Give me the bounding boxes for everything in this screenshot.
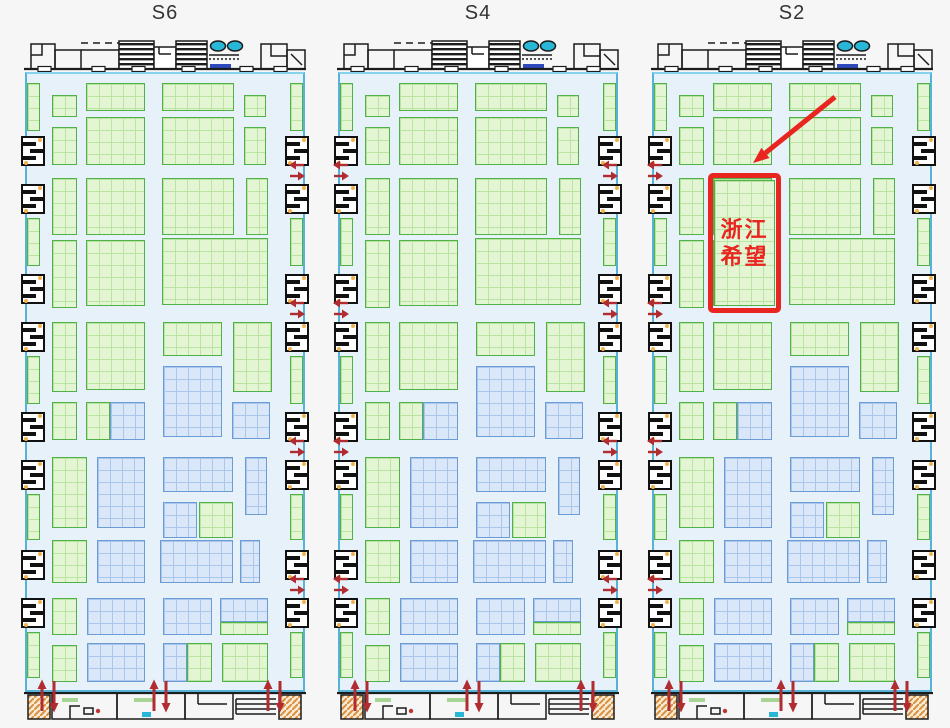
service-room-module: [21, 598, 45, 628]
booth: [52, 240, 77, 308]
booth: [240, 540, 260, 583]
two-way-arrow-icon: [601, 435, 619, 459]
service-room-module: [21, 412, 45, 442]
service-room-module: [285, 322, 309, 352]
booth: [163, 366, 222, 437]
floorplan-s4: [335, 0, 621, 728]
booth: [871, 95, 893, 117]
two-way-arrow-icon: [332, 297, 350, 321]
booth: [737, 402, 772, 440]
service-room-module: [598, 598, 622, 628]
booth: [545, 402, 583, 439]
booth: [365, 540, 400, 583]
booth: [423, 402, 458, 440]
booth: [790, 598, 839, 635]
service-room-icon: [912, 184, 936, 214]
booth: [871, 127, 893, 165]
two-way-arrow: [646, 159, 664, 183]
service-room-icon: [912, 550, 936, 580]
two-way-arrow-icon: [601, 159, 619, 183]
booth: [52, 178, 77, 235]
booth: [790, 366, 849, 437]
service-room-icon: [21, 184, 45, 214]
service-room-icon: [21, 412, 45, 442]
top-architecture-strip: [335, 38, 621, 72]
booth: [679, 540, 714, 583]
booth: [790, 502, 824, 538]
booth: [872, 457, 894, 515]
two-way-arrow-icon: [646, 573, 664, 597]
booth: [476, 502, 510, 538]
service-room-module: [912, 184, 936, 214]
wall-booth: [603, 83, 616, 131]
booth: [410, 457, 458, 528]
service-room-icon: [21, 598, 45, 628]
booth: [52, 322, 77, 392]
booth: [557, 95, 579, 117]
wall-booth: [603, 218, 616, 266]
booth: [476, 643, 500, 682]
two-way-arrow-icon: [288, 297, 306, 321]
wall-booth: [290, 83, 303, 131]
service-room-module: [598, 184, 622, 214]
service-room-icon: [21, 136, 45, 166]
service-room-icon: [648, 322, 672, 352]
hall-panel-s2: S2: [649, 0, 935, 728]
wall-booth: [654, 632, 667, 678]
booth: [814, 643, 839, 682]
two-way-arrow-icon: [332, 573, 350, 597]
service-room-icon: [21, 274, 45, 304]
booth: [713, 117, 772, 165]
booth: [475, 117, 547, 165]
booth: [476, 598, 525, 635]
up-down-arrow: [148, 678, 172, 714]
service-room-module: [912, 322, 936, 352]
service-room-module: [648, 598, 672, 628]
booth: [365, 322, 390, 392]
booth: [244, 127, 266, 165]
booth: [162, 178, 234, 235]
booth: [52, 127, 77, 165]
up-down-arrow-icon: [775, 678, 799, 714]
booth: [533, 598, 581, 622]
fixture-oval-icon: [228, 41, 243, 51]
up-down-arrow: [575, 678, 599, 714]
two-way-arrow: [288, 573, 306, 597]
booth: [52, 457, 87, 528]
booth: [789, 238, 895, 305]
service-room-module: [21, 322, 45, 352]
booth: [163, 502, 197, 538]
wall-booth: [917, 494, 930, 540]
booth: [86, 117, 145, 165]
up-down-arrow-icon: [889, 678, 913, 714]
service-room-icon: [912, 322, 936, 352]
service-room-module: [912, 598, 936, 628]
floorplan-s2: 浙江希望: [649, 0, 935, 728]
wall-booth: [603, 632, 616, 678]
wall-booth: [654, 356, 667, 404]
booth: [232, 402, 270, 439]
booth: [233, 322, 272, 392]
booth: [512, 502, 546, 538]
booth: [162, 117, 234, 165]
service-room-module: [334, 184, 358, 214]
booth: [86, 402, 110, 440]
wall-booth: [27, 632, 40, 678]
hall-panel-s6: S6: [22, 0, 308, 728]
booth: [847, 622, 895, 635]
booth: [679, 95, 704, 117]
wall-booth: [603, 494, 616, 540]
service-room-icon: [334, 598, 358, 628]
wall-booth: [917, 83, 930, 131]
booth: [97, 457, 145, 528]
two-way-arrow: [332, 573, 350, 597]
two-way-arrow: [646, 297, 664, 321]
floorplan-s6: [22, 0, 308, 728]
fixture-oval-icon: [211, 41, 226, 51]
service-room-module: [334, 460, 358, 490]
service-room-icon: [285, 598, 309, 628]
booth: [679, 322, 704, 392]
up-down-arrow: [663, 678, 687, 714]
booth: [52, 598, 77, 635]
service-room-icon: [912, 136, 936, 166]
booth: [713, 402, 737, 440]
wall-booth: [290, 494, 303, 540]
service-room-module: [334, 598, 358, 628]
service-room-module: [21, 274, 45, 304]
booth: [400, 643, 458, 682]
wall-booth: [27, 494, 40, 540]
booth: [245, 457, 267, 515]
service-room-icon: [598, 598, 622, 628]
booth: [365, 645, 390, 682]
booth: [399, 178, 458, 235]
wall-booth: [290, 218, 303, 266]
booth: [476, 322, 535, 356]
fixture-oval-icon: [524, 41, 539, 51]
booth: [559, 178, 581, 235]
booth: [52, 402, 77, 440]
two-way-arrow: [332, 435, 350, 459]
service-room-icon: [285, 322, 309, 352]
service-room-module: [912, 460, 936, 490]
service-room-icon: [21, 550, 45, 580]
wall-booth: [917, 356, 930, 404]
highlight-label-line: 浙江: [720, 216, 768, 243]
service-room-icon: [285, 184, 309, 214]
booth: [473, 540, 546, 583]
booth: [87, 643, 145, 682]
booth: [679, 402, 704, 440]
booth: [162, 238, 268, 305]
two-way-arrow-icon: [646, 159, 664, 183]
booth: [86, 240, 145, 306]
booth: [789, 83, 861, 111]
up-down-arrow-icon: [575, 678, 599, 714]
fixture-oval-icon: [838, 41, 853, 51]
wall-booth: [340, 494, 353, 540]
two-way-arrow: [288, 159, 306, 183]
booth: [399, 83, 458, 111]
up-down-arrow: [461, 678, 485, 714]
service-room-module: [912, 550, 936, 580]
top-architecture-drawing: [335, 38, 621, 72]
booth: [52, 540, 87, 583]
two-way-arrow-icon: [288, 573, 306, 597]
booth: [790, 322, 849, 356]
booth: [679, 127, 704, 165]
service-room-icon: [648, 184, 672, 214]
wall-booth: [340, 83, 353, 131]
booth: [86, 83, 145, 111]
booth: [867, 540, 887, 583]
service-room-icon: [912, 274, 936, 304]
booth: [163, 322, 222, 356]
booth: [52, 95, 77, 117]
two-way-arrow: [646, 573, 664, 597]
fixture-oval-icon: [541, 41, 556, 51]
two-way-arrow-icon: [288, 159, 306, 183]
service-room-icon: [334, 322, 358, 352]
booth: [679, 457, 714, 528]
highlight-label-line: 希望: [720, 243, 768, 270]
booth: [399, 322, 458, 390]
service-room-icon: [334, 460, 358, 490]
wall-booth: [603, 356, 616, 404]
two-way-arrow-icon: [332, 435, 350, 459]
service-room-icon: [598, 460, 622, 490]
service-room-icon: [912, 460, 936, 490]
wall-booth: [27, 356, 40, 404]
two-way-arrow: [332, 297, 350, 321]
two-way-arrow: [601, 435, 619, 459]
booth: [553, 540, 573, 583]
booth: [163, 457, 233, 492]
two-way-arrow: [601, 297, 619, 321]
booth: [714, 643, 772, 682]
two-way-arrow-icon: [288, 435, 306, 459]
wall-booth: [340, 632, 353, 678]
top-architecture-drawing: [649, 38, 935, 72]
service-room-module: [285, 598, 309, 628]
service-room-icon: [334, 184, 358, 214]
wall-booth: [27, 83, 40, 131]
booth: [787, 540, 860, 583]
booth: [860, 322, 899, 392]
two-way-arrow: [288, 297, 306, 321]
service-room-module: [21, 550, 45, 580]
booth: [535, 643, 581, 682]
two-way-arrow-icon: [646, 435, 664, 459]
wall-booth: [654, 494, 667, 540]
up-down-arrow-icon: [36, 678, 60, 714]
booth: [476, 457, 546, 492]
booth: [199, 502, 233, 538]
booth: [475, 83, 547, 111]
two-way-arrow: [288, 435, 306, 459]
up-down-arrow-icon: [663, 678, 687, 714]
booth: [163, 598, 212, 635]
booth: [679, 178, 704, 235]
service-room-icon: [598, 184, 622, 214]
wall-booth: [290, 632, 303, 678]
two-way-arrow: [646, 435, 664, 459]
service-room-icon: [21, 322, 45, 352]
service-room-module: [21, 184, 45, 214]
top-architecture-strip: [22, 38, 308, 72]
up-down-arrow: [262, 678, 286, 714]
booth: [399, 402, 423, 440]
up-down-arrow-icon: [262, 678, 286, 714]
booth: [365, 240, 390, 308]
booth: [789, 117, 861, 165]
booth: [400, 598, 458, 635]
booth: [713, 322, 772, 390]
two-way-arrow: [601, 573, 619, 597]
two-way-arrow-icon: [601, 573, 619, 597]
booth: [399, 240, 458, 306]
booth: [558, 457, 580, 515]
service-room-icon: [912, 412, 936, 442]
booth: [790, 643, 814, 682]
hall-panel-s4: S4: [335, 0, 621, 728]
booth: [557, 127, 579, 165]
service-room-module: [648, 322, 672, 352]
highlight-label: 浙江希望: [708, 173, 781, 313]
booth: [679, 240, 704, 308]
booth: [410, 540, 458, 583]
wall-booth: [654, 218, 667, 266]
service-room-module: [598, 322, 622, 352]
two-way-arrow: [601, 159, 619, 183]
wall-booth: [917, 632, 930, 678]
wall-booth: [340, 218, 353, 266]
booth: [476, 366, 535, 437]
top-architecture-strip: [649, 38, 935, 72]
booth: [790, 457, 860, 492]
booth: [163, 643, 187, 682]
up-down-arrow-icon: [148, 678, 172, 714]
booth: [399, 117, 458, 165]
booth: [859, 402, 897, 439]
booth: [849, 643, 895, 682]
booth: [187, 643, 212, 682]
up-down-arrow-icon: [349, 678, 373, 714]
service-room-icon: [912, 598, 936, 628]
up-down-arrow: [349, 678, 373, 714]
booth: [220, 598, 268, 622]
booth: [873, 178, 895, 235]
booth: [220, 622, 268, 635]
service-room-module: [285, 184, 309, 214]
booth: [475, 238, 581, 305]
wall-booth: [654, 83, 667, 131]
service-room-module: [912, 412, 936, 442]
booth: [789, 178, 861, 235]
floorplan-canvas: S6: [0, 0, 950, 728]
service-room-module: [648, 460, 672, 490]
booth: [86, 322, 145, 390]
booth: [714, 598, 772, 635]
booth: [244, 95, 266, 117]
service-room-module: [648, 184, 672, 214]
booth: [162, 83, 234, 111]
booth: [246, 178, 268, 235]
service-room-module: [21, 460, 45, 490]
booth: [97, 540, 145, 583]
booth: [679, 598, 704, 635]
booth: [826, 502, 860, 538]
booth: [500, 643, 525, 682]
booth: [533, 622, 581, 635]
booth: [724, 457, 772, 528]
booth: [222, 643, 268, 682]
two-way-arrow-icon: [332, 159, 350, 183]
wall-booth: [27, 218, 40, 266]
two-way-arrow: [332, 159, 350, 183]
wall-booth: [340, 356, 353, 404]
booth: [679, 645, 704, 682]
service-room-module: [912, 136, 936, 166]
service-room-icon: [648, 598, 672, 628]
booth: [160, 540, 233, 583]
booth: [365, 598, 390, 635]
up-down-arrow-icon: [461, 678, 485, 714]
service-room-icon: [285, 460, 309, 490]
up-down-arrow: [36, 678, 60, 714]
service-room-icon: [21, 460, 45, 490]
booth: [365, 457, 400, 528]
two-way-arrow-icon: [601, 297, 619, 321]
booth: [86, 178, 145, 235]
two-way-arrow-icon: [646, 297, 664, 321]
service-room-module: [21, 136, 45, 166]
up-down-arrow: [775, 678, 799, 714]
booth: [52, 645, 77, 682]
booth: [365, 127, 390, 165]
booth: [847, 598, 895, 622]
booth: [724, 540, 772, 583]
wall-booth: [290, 356, 303, 404]
service-room-icon: [648, 460, 672, 490]
booth: [365, 178, 390, 235]
booth: [546, 322, 585, 392]
service-room-module: [598, 460, 622, 490]
fixture-oval-icon: [855, 41, 870, 51]
service-room-module: [912, 274, 936, 304]
top-architecture-drawing: [22, 38, 308, 72]
booth: [110, 402, 145, 440]
service-room-icon: [598, 322, 622, 352]
booth: [713, 83, 772, 111]
service-room-module: [285, 460, 309, 490]
up-down-arrow: [889, 678, 913, 714]
booth: [475, 178, 547, 235]
service-room-module: [334, 322, 358, 352]
booth: [365, 402, 390, 440]
wall-booth: [917, 218, 930, 266]
booth: [87, 598, 145, 635]
booth: [365, 95, 390, 117]
